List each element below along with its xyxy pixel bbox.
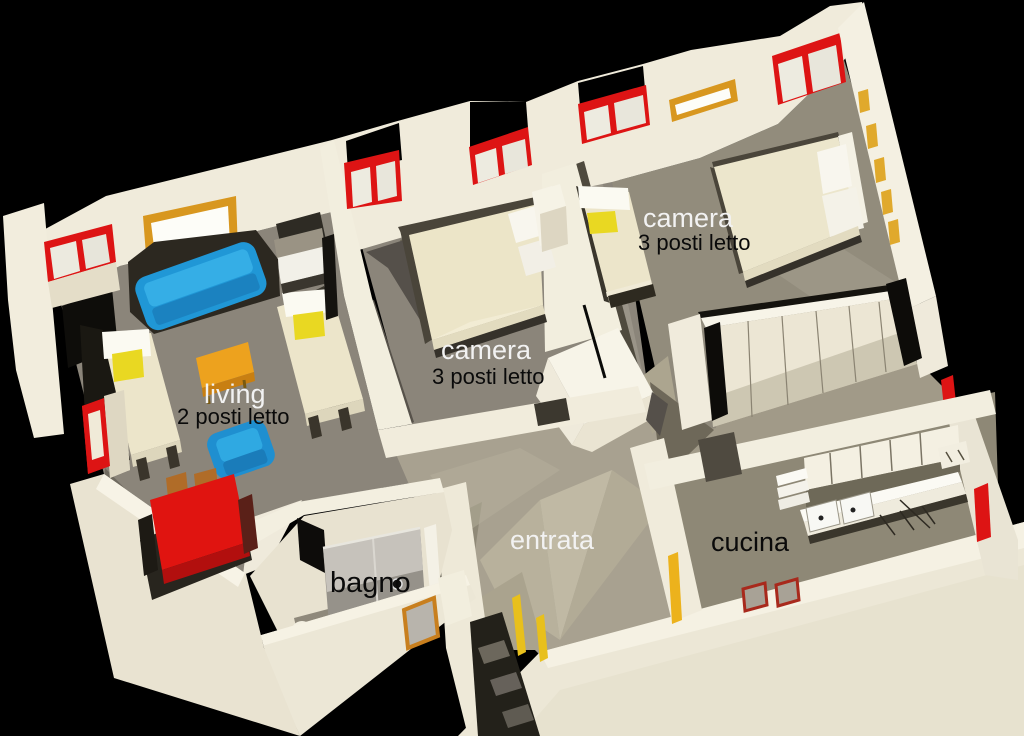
svg-text:cucina: cucina <box>711 527 790 557</box>
svg-text:2 posti letto: 2 posti letto <box>177 404 290 429</box>
svg-text:3 posti letto: 3 posti letto <box>638 230 751 255</box>
svg-text:entrata: entrata <box>510 525 595 555</box>
svg-text:camera: camera <box>643 203 734 233</box>
svg-text:camera: camera <box>441 335 532 365</box>
svg-text:bagno: bagno <box>330 567 411 599</box>
svg-text:3 posti letto: 3 posti letto <box>432 364 545 389</box>
